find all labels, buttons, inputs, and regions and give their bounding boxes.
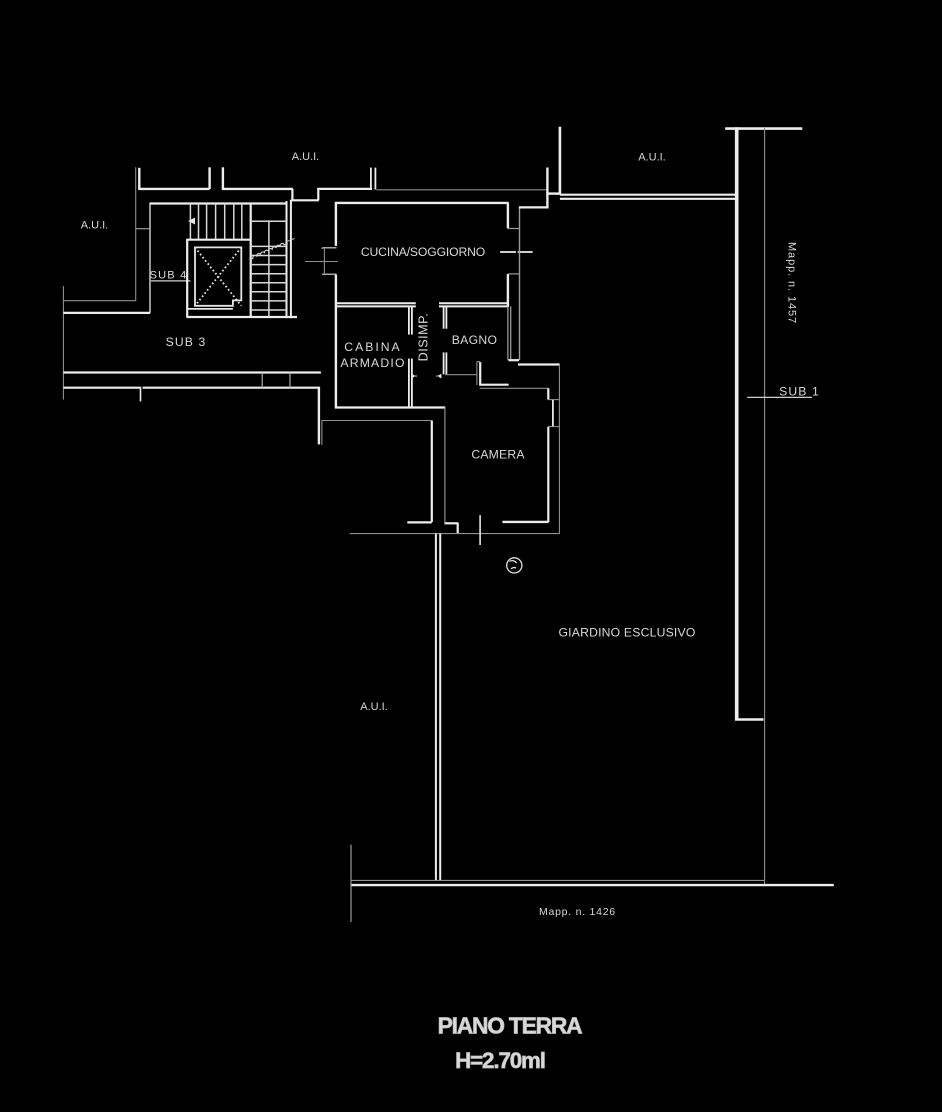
svg-text:A.U.I.: A.U.I. xyxy=(292,151,320,163)
svg-text:DISIMP.: DISIMP. xyxy=(417,313,431,362)
svg-text:Mapp. n. 1457: Mapp. n. 1457 xyxy=(786,242,798,324)
svg-text:SUB 3: SUB 3 xyxy=(166,335,207,349)
svg-text:GIARDINO ESCLUSIVO: GIARDINO ESCLUSIVO xyxy=(558,626,695,640)
svg-text:H=2.70ml: H=2.70ml xyxy=(455,1048,545,1073)
svg-text:CABINA: CABINA xyxy=(344,340,401,354)
svg-text:CUCINA/SOGGIORNO: CUCINA/SOGGIORNO xyxy=(361,245,485,259)
svg-text:SUB 1: SUB 1 xyxy=(779,385,820,399)
svg-text:PIANO TERRA: PIANO TERRA xyxy=(438,1013,583,1039)
svg-text:A.U.I.: A.U.I. xyxy=(638,152,666,164)
svg-text:BAGNO: BAGNO xyxy=(452,333,498,347)
svg-text:ARMADIO: ARMADIO xyxy=(340,356,405,370)
svg-text:A.U.I.: A.U.I. xyxy=(81,220,109,232)
svg-text:A.U.I.: A.U.I. xyxy=(360,701,388,713)
svg-text:SUB 4: SUB 4 xyxy=(150,270,188,282)
svg-text:Mapp. n. 1426: Mapp. n. 1426 xyxy=(539,906,616,918)
svg-text:CAMERA: CAMERA xyxy=(471,448,525,462)
